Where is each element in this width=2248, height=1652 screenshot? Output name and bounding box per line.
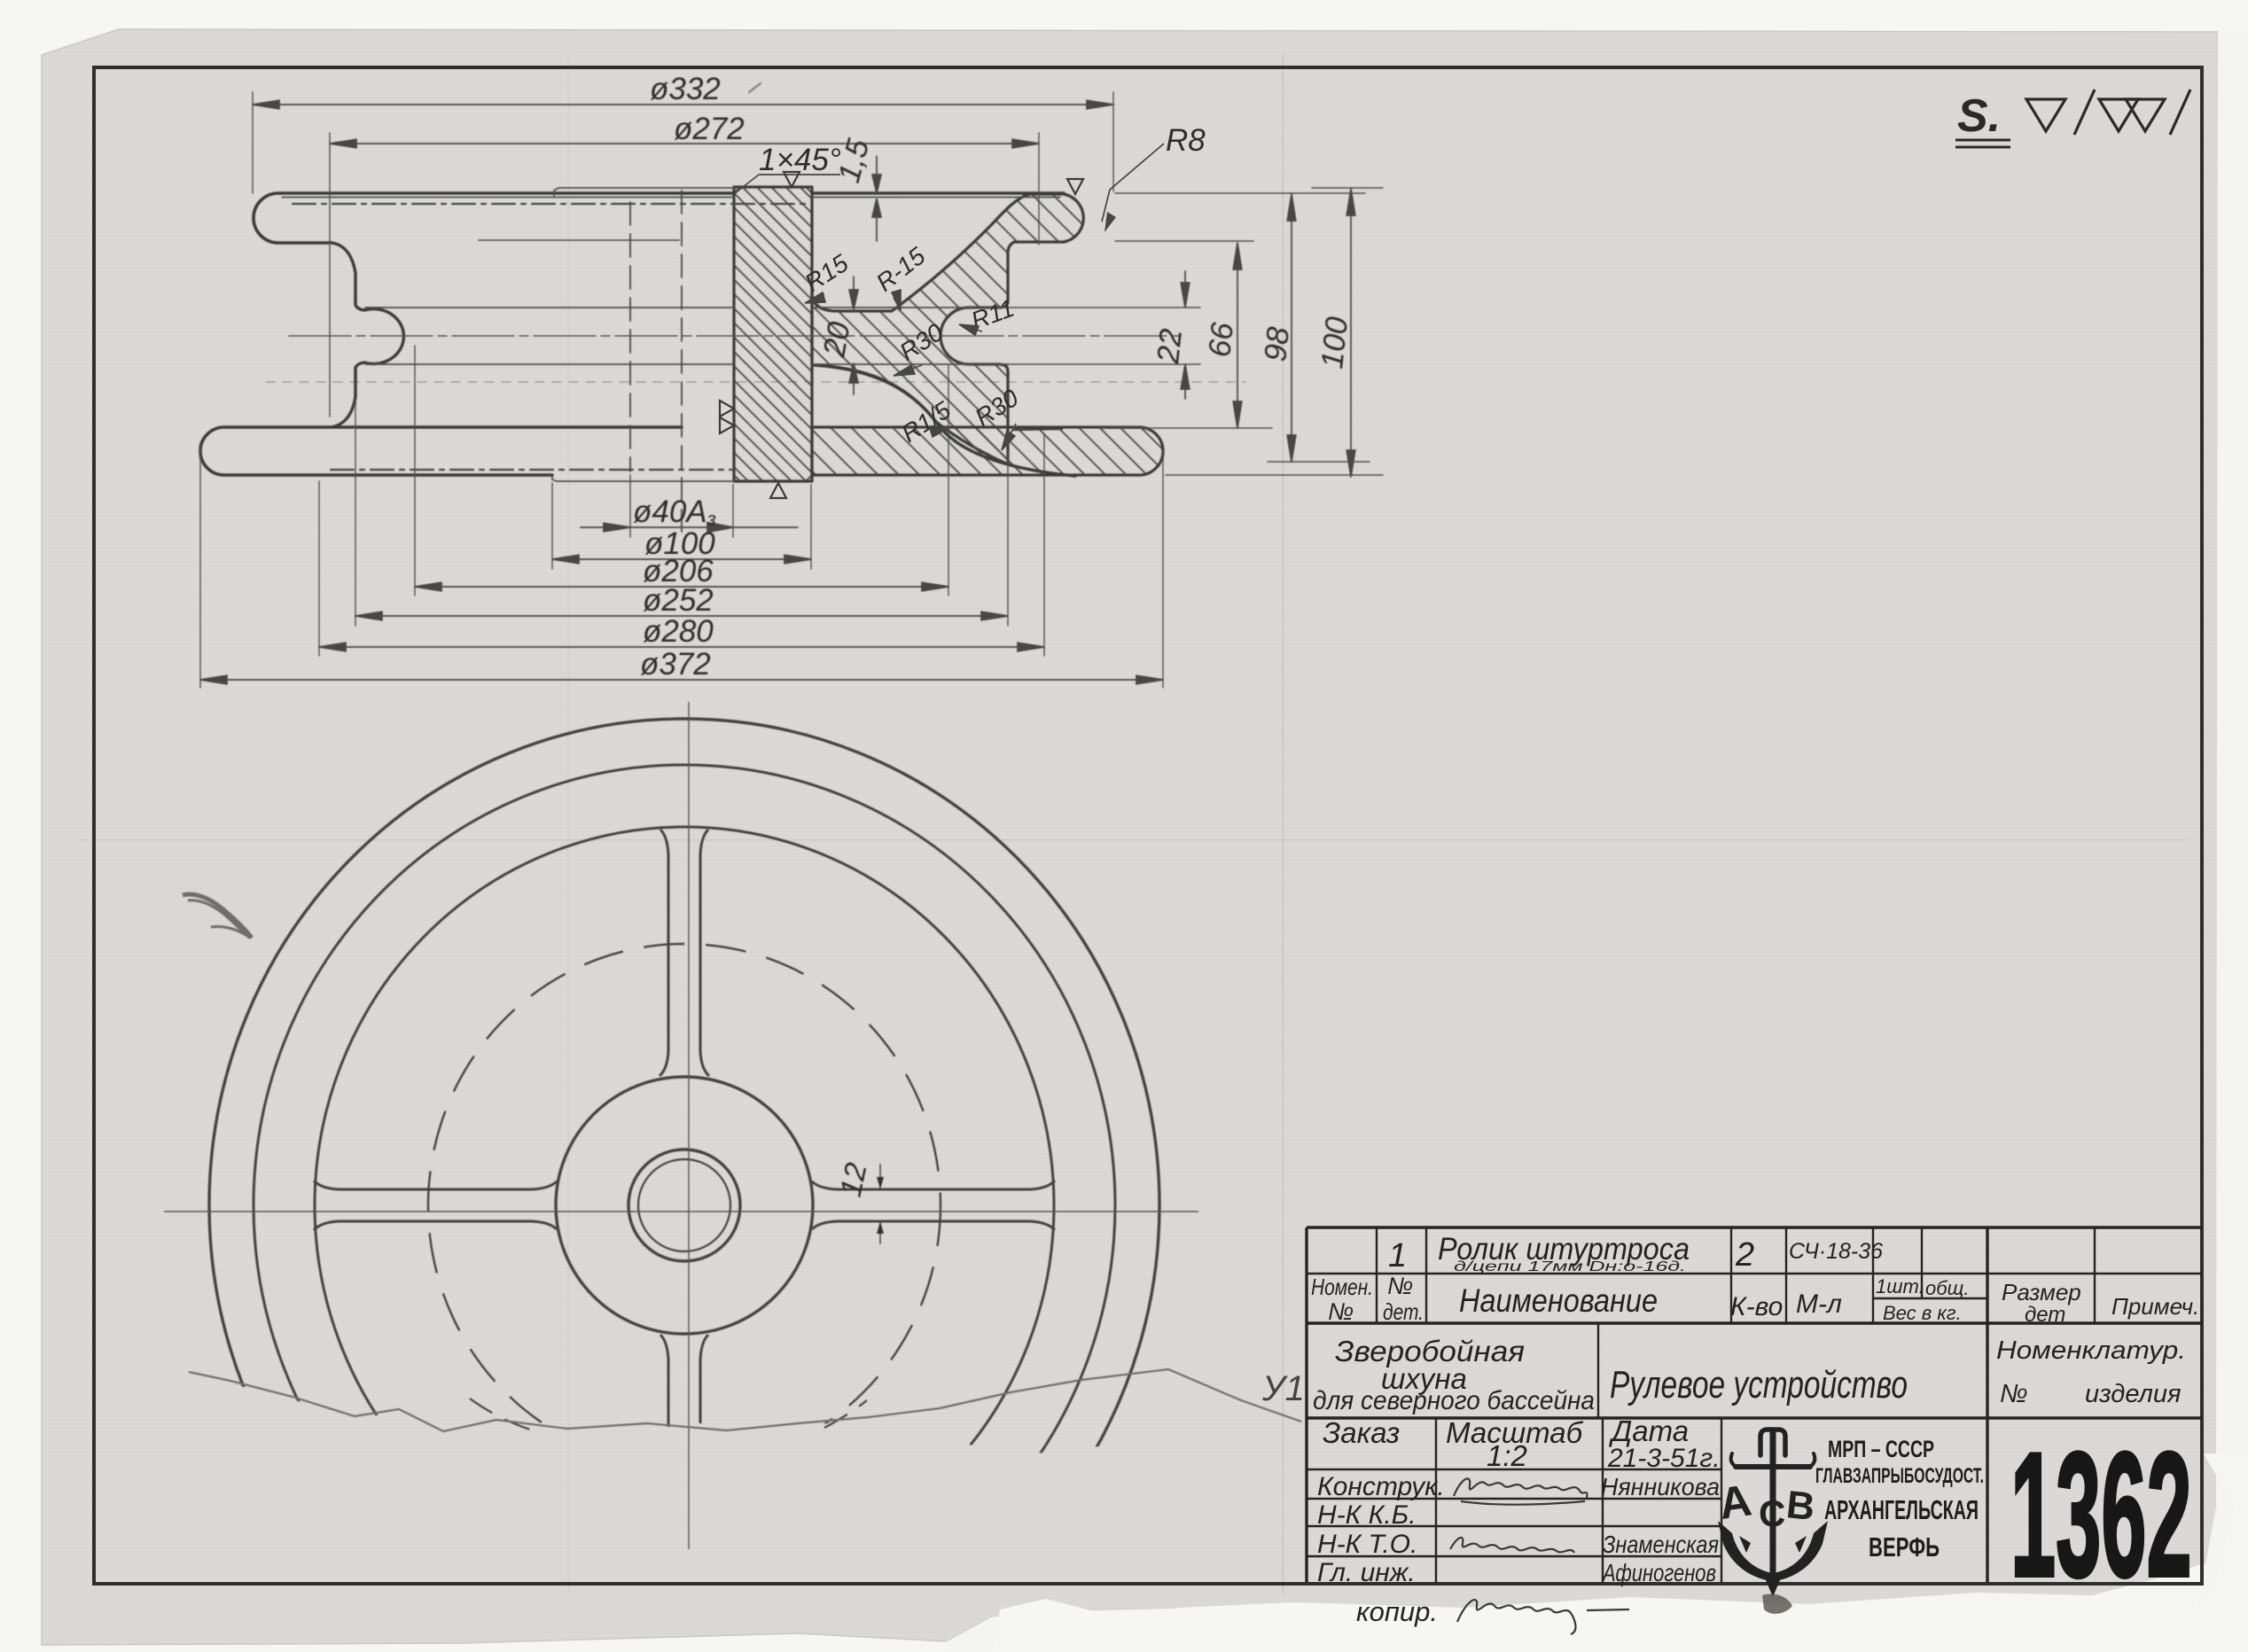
svg-text:1шт.: 1шт. xyxy=(1876,1275,1924,1297)
svg-text:21-3-51г.: 21-3-51г. xyxy=(1607,1444,1721,1473)
svg-text:изделия: изделия xyxy=(2085,1380,2181,1408)
svg-text:Нянникова: Нянникова xyxy=(1601,1473,1720,1500)
svg-text:ø372: ø372 xyxy=(640,647,711,682)
svg-text:Номен.: Номен. xyxy=(1311,1274,1373,1300)
svg-text:Размер: Размер xyxy=(2002,1279,2081,1305)
svg-text:2: 2 xyxy=(1735,1236,1754,1274)
svg-text:1: 1 xyxy=(1388,1237,1407,1274)
svg-text:Вес в кг.: Вес в кг. xyxy=(1883,1302,1962,1324)
svg-text:Номенклатур.: Номенклатур. xyxy=(1996,1336,2186,1365)
svg-text:12: 12 xyxy=(834,1160,874,1200)
svg-text:S.: S. xyxy=(1957,90,2001,142)
svg-text:дет.: дет. xyxy=(1383,1298,1424,1325)
svg-text:20: 20 xyxy=(816,319,856,361)
svg-text:А: А xyxy=(1716,1475,1755,1528)
svg-text:АРХАНГЕЛЬСКАЯ: АРХАНГЕЛЬСКАЯ xyxy=(1824,1494,1979,1525)
svg-text:У1: У1 xyxy=(1261,1369,1305,1408)
svg-text:К-во: К-во xyxy=(1730,1292,1783,1321)
svg-text:Конструк.: Конструк. xyxy=(1317,1472,1445,1501)
svg-text:Гл. инж.: Гл. инж. xyxy=(1317,1558,1416,1587)
svg-text:ø40Аз: ø40Аз xyxy=(633,495,716,530)
svg-text:№: № xyxy=(1328,1298,1354,1325)
svg-text:ø280: ø280 xyxy=(643,614,714,649)
svg-text:Афиногенов: Афиногенов xyxy=(1601,1559,1716,1586)
svg-text:В: В xyxy=(1784,1483,1817,1529)
svg-text:Н-К К.Б.: Н-К К.Б. xyxy=(1317,1500,1417,1530)
svg-text:ø332: ø332 xyxy=(650,72,721,106)
svg-text:98: 98 xyxy=(1258,325,1296,363)
svg-text:1:2: 1:2 xyxy=(1487,1439,1527,1472)
svg-text:Заказ: Заказ xyxy=(1323,1416,1400,1449)
svg-text:ГЛАВЗАПРЫБОСУДОСТ.: ГЛАВЗАПРЫБОСУДОСТ. xyxy=(1815,1464,1984,1488)
svg-text:для северного бассейна: для северного бассейна xyxy=(1313,1386,1595,1415)
svg-text:СЧ·18-36: СЧ·18-36 xyxy=(1789,1239,1883,1264)
svg-text:№: № xyxy=(2000,1380,2027,1408)
svg-text:копир.: копир. xyxy=(1356,1596,1438,1627)
svg-text:№: № xyxy=(1387,1273,1413,1299)
svg-text:общ.: общ. xyxy=(1925,1277,1969,1299)
svg-text:М-л: М-л xyxy=(1796,1290,1842,1319)
svg-text:Дата: Дата xyxy=(1608,1414,1689,1447)
svg-text:22: 22 xyxy=(1151,327,1189,366)
svg-text:ø252: ø252 xyxy=(643,583,714,618)
svg-text:1362: 1362 xyxy=(2010,1415,2192,1614)
svg-text:100: 100 xyxy=(1315,315,1354,370)
svg-text:ВЕРФЬ: ВЕРФЬ xyxy=(1869,1531,1940,1562)
svg-text:Примеч.: Примеч. xyxy=(2111,1293,2199,1320)
svg-text:66: 66 xyxy=(1202,321,1240,359)
svg-text:д/цепи 17мм Dн:о-16д.: д/цепи 17мм Dн:о-16д. xyxy=(1454,1259,1686,1274)
svg-text:R8: R8 xyxy=(1166,123,1206,158)
svg-text:ø272: ø272 xyxy=(674,112,745,146)
svg-text:Наименование: Наименование xyxy=(1459,1282,1658,1319)
svg-text:Н-К Т.О.: Н-К Т.О. xyxy=(1317,1530,1417,1559)
svg-text:С: С xyxy=(1759,1492,1785,1534)
svg-text:дет: дет xyxy=(2025,1303,2065,1327)
svg-text:Рулевое устройство: Рулевое устройство xyxy=(1610,1363,1908,1407)
svg-text:Знаменская: Знаменская xyxy=(1603,1531,1719,1558)
svg-text:МРП – СССР: МРП – СССР xyxy=(1828,1436,1934,1462)
